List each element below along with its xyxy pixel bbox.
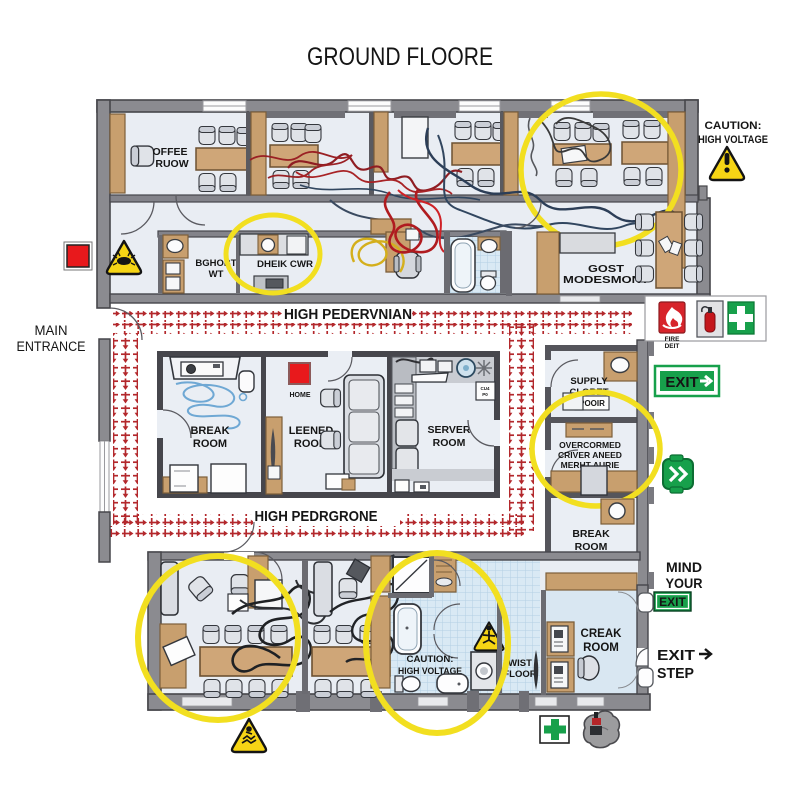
svg-text:FIRE: FIRE: [665, 336, 680, 343]
svg-text:ROOM: ROOM: [433, 437, 466, 449]
svg-text:HIGH VOLTAGE: HIGH VOLTAGE: [698, 134, 768, 146]
svg-text:OVERCORMED: OVERCORMED: [559, 440, 621, 450]
svg-text:WT: WT: [209, 269, 224, 280]
svg-text:STEP: STEP: [657, 665, 694, 682]
svg-text:WIST: WIST: [508, 658, 532, 669]
svg-text:BREAK: BREAK: [190, 425, 229, 437]
svg-text:CREAK: CREAK: [581, 628, 623, 640]
svg-text:P0: P0: [482, 392, 488, 397]
svg-text:SUPPLY: SUPPLY: [570, 376, 608, 387]
svg-text:CU4: CU4: [480, 386, 489, 391]
svg-text:FLOOR: FLOOR: [503, 669, 536, 680]
svg-text:OFFEE: OFFEE: [152, 146, 187, 158]
svg-text:MIND: MIND: [666, 559, 702, 575]
svg-text:DEIT: DEIT: [665, 343, 680, 350]
svg-text:BREAK: BREAK: [572, 528, 610, 540]
svg-text:HIGH PEDRGRONE: HIGH PEDRGRONE: [255, 508, 378, 525]
svg-text:ROOM: ROOM: [575, 541, 608, 553]
svg-text:EXIT: EXIT: [659, 595, 686, 609]
svg-text:HIGH PEDERVNIAN: HIGH PEDERVNIAN: [284, 306, 412, 323]
svg-text:CAUTION:: CAUTION:: [705, 120, 762, 132]
svg-text:CAUTION:: CAUTION:: [407, 654, 454, 665]
svg-text:ROOM: ROOM: [193, 438, 227, 450]
svg-text:DHEIK CWR: DHEIK CWR: [257, 259, 313, 270]
svg-text:SERVER: SERVER: [428, 424, 471, 436]
svg-text:RUOW: RUOW: [155, 158, 188, 170]
svg-text:ROOM: ROOM: [583, 642, 619, 654]
svg-text:GOST: GOST: [588, 264, 624, 275]
svg-text:YOUR: YOUR: [666, 575, 703, 591]
svg-text:ENTRANCE: ENTRANCE: [17, 339, 86, 354]
svg-text:EXIT: EXIT: [665, 374, 698, 391]
svg-text:EXIT: EXIT: [657, 647, 695, 664]
svg-text:CRIVER ANEED: CRIVER ANEED: [558, 450, 622, 460]
svg-text:MAIN: MAIN: [35, 323, 68, 338]
svg-text:HOME: HOME: [290, 392, 311, 399]
svg-text:GROUND FLOORE: GROUND FLOORE: [307, 43, 493, 71]
